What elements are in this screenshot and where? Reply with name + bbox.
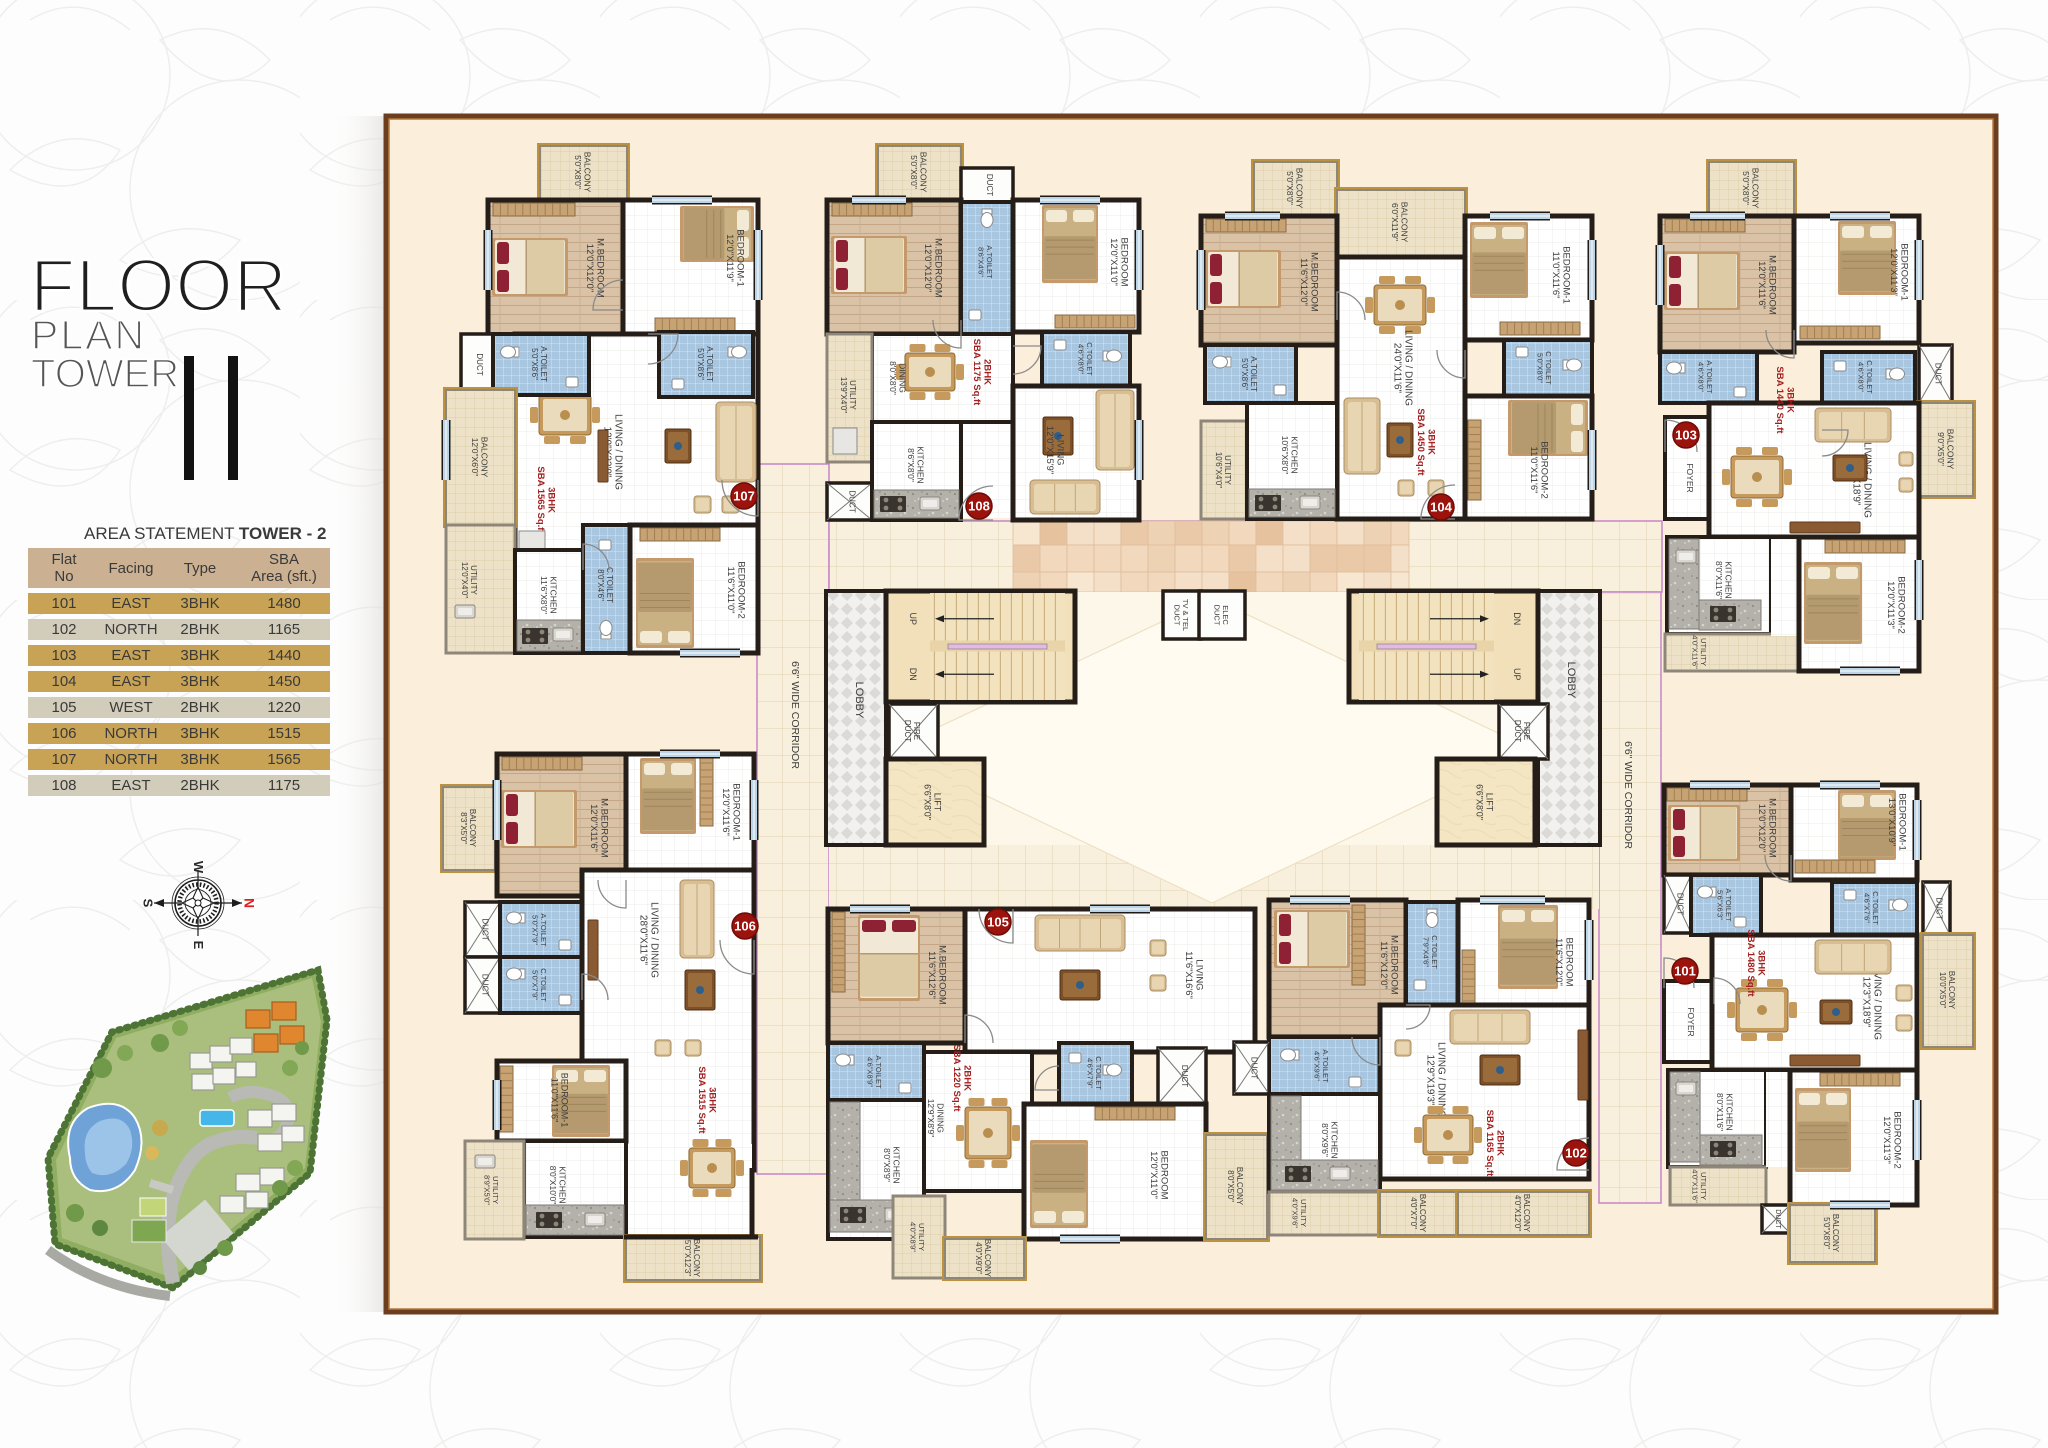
svg-text:C.TOILET4'6"X8'0": C.TOILET4'6"X8'0" — [1077, 342, 1095, 376]
svg-text:DUCT: DUCT — [848, 490, 857, 512]
svg-text:DUCT: DUCT — [1676, 893, 1685, 915]
svg-text:C.TOILET5'0"X7'9": C.TOILET5'0"X7'9" — [531, 968, 549, 1002]
svg-text:DINING8'0"X8'0": DINING8'0"X8'0" — [888, 361, 908, 395]
svg-text:C.TOILET8'0"X4'6": C.TOILET8'0"X4'6" — [596, 567, 614, 603]
svg-text:DUCT: DUCT — [1774, 1209, 1781, 1229]
svg-text:106: 106 — [734, 919, 756, 934]
svg-text:BEDROOM11'6"X12'0": BEDROOM11'6"X12'0" — [1553, 937, 1575, 986]
svg-text:DUCT: DUCT — [1935, 897, 1944, 919]
svg-text:KITCHEN8'0"X8'9": KITCHEN8'0"X8'9" — [882, 1146, 902, 1183]
svg-text:UTILITY10'6"X4'0": UTILITY10'6"X4'0" — [1214, 452, 1232, 488]
svg-text:KITCHEN8'0"X11'6": KITCHEN8'0"X11'6" — [1715, 1093, 1735, 1131]
svg-text:103: 103 — [1675, 428, 1697, 443]
svg-text:DUCT: DUCT — [1934, 363, 1943, 385]
svg-text:LOBBY: LOBBY — [1565, 662, 1577, 699]
svg-text:UTILITY4'0"X11'6": UTILITY4'0"X11'6" — [1691, 1169, 1709, 1203]
svg-text:BALCONY12'0"X6'0": BALCONY12'0"X6'0" — [470, 437, 490, 478]
svg-text:BEDROOM-112'0"X11'3": BEDROOM-112'0"X11'3" — [1888, 243, 1910, 301]
svg-text:6'6" WIDE CORRIDOR: 6'6" WIDE CORRIDOR — [1622, 741, 1634, 849]
svg-text:BALCONY5'0"X8'0": BALCONY5'0"X8'0" — [1741, 168, 1761, 209]
svg-text:104: 104 — [1430, 500, 1452, 515]
svg-text:BALCONY4'0"X12'0": BALCONY4'0"X12'0" — [1513, 1194, 1531, 1233]
svg-text:BEDROOM-111'0"X11'6": BEDROOM-111'0"X11'6" — [549, 1073, 569, 1128]
svg-text:BALCONY5'0"X8'0": BALCONY5'0"X8'0" — [1285, 168, 1305, 209]
svg-text:M.BEDROOM12'0"X12'0": M.BEDROOM12'0"X12'0" — [1756, 798, 1778, 858]
svg-text:DN: DN — [1512, 612, 1522, 625]
svg-text:BEDROOM-111'0"X11'6": BEDROOM-111'0"X11'6" — [1550, 246, 1572, 304]
svg-text:BALCONY5'0"X8'0": BALCONY5'0"X8'0" — [573, 152, 593, 193]
svg-text:UTILITY4'0"X11'6": UTILITY4'0"X11'6" — [1691, 635, 1709, 669]
svg-text:KITCHEN10'6"X8'0": KITCHEN10'6"X8'0" — [1280, 436, 1300, 475]
svg-text:ELECDUCT: ELECDUCT — [1213, 605, 1231, 626]
svg-text:KITCHEN8'0"X10'0": KITCHEN8'0"X10'0" — [548, 1166, 568, 1205]
svg-text:BALCONY8'3"X5'0": BALCONY8'3"X5'0" — [459, 809, 477, 848]
svg-text:KITCHEN8'0"X9'6": KITCHEN8'0"X9'6" — [1320, 1121, 1340, 1158]
svg-text:A.TOILET5'0"X8'6": A.TOILET5'0"X8'6" — [1240, 356, 1258, 392]
svg-text:A.TOILET4'6"X8'9": A.TOILET4'6"X8'9" — [866, 1055, 884, 1089]
svg-text:DINING12'9"X8'9": DINING12'9"X8'9" — [926, 1099, 946, 1138]
svg-text:105: 105 — [987, 915, 1009, 930]
svg-text:KITCHEN8'6"X8'0": KITCHEN8'6"X8'0" — [906, 446, 926, 483]
svg-text:A.TOILET5'0"X8'6": A.TOILET5'0"X8'6" — [696, 346, 714, 382]
svg-text:M.BEDROOM11'6"X12'0": M.BEDROOM11'6"X12'0" — [1378, 935, 1400, 995]
svg-text:BALCONY5'0"X8'0": BALCONY5'0"X8'0" — [909, 152, 929, 193]
svg-text:FOYER: FOYER — [1686, 1007, 1696, 1036]
svg-text:M.BEDROOM11'6"X12'0": M.BEDROOM11'6"X12'0" — [1298, 252, 1320, 312]
svg-text:DUCT: DUCT — [1250, 1057, 1259, 1079]
svg-text:A.TOILET5'0"X7'9": A.TOILET5'0"X7'9" — [531, 913, 549, 947]
svg-text:BEDROOM-113'0"X10'9": BEDROOM-113'0"X10'9" — [1886, 793, 1908, 851]
svg-text:UTILITY8'9"X5'0": UTILITY8'9"X5'0" — [483, 1175, 501, 1205]
svg-text:6'6" WIDE CORRIDOR: 6'6" WIDE CORRIDOR — [789, 661, 801, 769]
svg-text:102: 102 — [1565, 1146, 1587, 1161]
svg-text:BEDROOM-112'0"X11'6": BEDROOM-112'0"X11'6" — [720, 783, 742, 841]
svg-text:DUCT: DUCT — [481, 974, 490, 996]
svg-text:C.TOILET4'6"X8'0": C.TOILET4'6"X8'0" — [1857, 360, 1875, 394]
svg-text:C.TOILET4'6"X7'9": C.TOILET4'6"X7'9" — [1086, 1056, 1104, 1090]
svg-text:BEDROOM-212'0"X11'3": BEDROOM-212'0"X11'3" — [1881, 1111, 1903, 1169]
svg-text:BEDROOM-112'0"X11'9": BEDROOM-112'0"X11'9" — [724, 229, 746, 287]
svg-text:DUCT: DUCT — [985, 174, 994, 196]
svg-text:101: 101 — [1674, 964, 1696, 979]
svg-text:BALCONY5'0"X8'0": BALCONY5'0"X8'0" — [1822, 1214, 1840, 1253]
svg-text:DUCT: DUCT — [1180, 1065, 1189, 1087]
svg-text:KITCHEN11'6"X8'0": KITCHEN11'6"X8'0" — [539, 576, 559, 614]
svg-text:M.BEDROOM12'0"X11'6": M.BEDROOM12'0"X11'6" — [588, 798, 610, 858]
svg-text:C.TOILET7'9"X4'6": C.TOILET7'9"X4'6" — [1422, 935, 1440, 969]
svg-text:A.TOILET5'0"X8'6": A.TOILET5'0"X8'6" — [530, 346, 548, 382]
svg-text:A.TOILET5'6"X6'3": A.TOILET5'6"X6'3" — [1716, 888, 1734, 922]
svg-text:FOYER: FOYER — [1685, 463, 1695, 492]
svg-text:A.TOILET8'6"X4'6": A.TOILET8'6"X4'6" — [977, 245, 995, 279]
svg-text:C TOILET5'0"X8'0": C TOILET5'0"X8'0" — [1536, 351, 1554, 385]
svg-text:M.BEDROOM12'0"X11'6": M.BEDROOM12'0"X11'6" — [1756, 255, 1778, 315]
svg-text:BEDROOM12'0"X11'0": BEDROOM12'0"X11'0" — [1108, 237, 1130, 286]
svg-text:UP: UP — [908, 612, 918, 625]
svg-text:UTILITY13'9"X4'0": UTILITY13'9"X4'0" — [839, 377, 857, 413]
svg-text:108: 108 — [968, 499, 990, 514]
svg-text:UTILITY4'0"X8'9": UTILITY4'0"X8'9" — [909, 1222, 927, 1252]
svg-text:M.BEDROOM11'6"X12'6": M.BEDROOM11'6"X12'6" — [926, 945, 948, 1005]
svg-text:107: 107 — [733, 489, 755, 504]
svg-text:BALCONY9'0"X5'0": BALCONY9'0"X5'0" — [1936, 429, 1956, 470]
svg-text:A.TOILET4'6"X9'6": A.TOILET4'6"X9'6" — [1313, 1049, 1331, 1083]
svg-text:LOBBY: LOBBY — [853, 682, 865, 719]
svg-text:BEDROOM12'0"X11'0": BEDROOM12'0"X11'0" — [1148, 1150, 1170, 1199]
svg-text:DUCT: DUCT — [481, 918, 490, 940]
svg-text:BALCONY10'0"X5'0": BALCONY10'0"X5'0" — [1938, 971, 1956, 1010]
svg-text:BEDROOM-212'0"X11'3": BEDROOM-212'0"X11'3" — [1885, 576, 1907, 634]
svg-text:M.BEDROOM12'0"X12'0": M.BEDROOM12'0"X12'0" — [922, 238, 944, 298]
svg-text:BEDROOM-211'6"X11'0": BEDROOM-211'6"X11'0" — [725, 561, 747, 619]
svg-text:KITCHEN8'0"X11'6": KITCHEN8'0"X11'6" — [1714, 561, 1734, 599]
svg-text:DN: DN — [908, 668, 918, 681]
svg-text:UP: UP — [1512, 668, 1522, 681]
svg-text:A.TOILET4'6"X8'0": A.TOILET4'6"X8'0" — [1697, 360, 1715, 394]
svg-text:UTILITY12'0"X4'0": UTILITY12'0"X4'0" — [460, 562, 478, 598]
svg-text:BALCONY8'0"X5'0": BALCONY8'0"X5'0" — [1226, 1167, 1244, 1206]
svg-text:FIREDUCT: FIREDUCT — [903, 720, 921, 742]
svg-text:C.TOILET4'6"X7'6": C.TOILET4'6"X7'6" — [1863, 891, 1881, 925]
svg-text:DUCT: DUCT — [475, 353, 484, 375]
svg-text:BALCONY4'0"X9'0": BALCONY4'0"X9'0" — [974, 1239, 992, 1278]
svg-text:BALCONY5'0"X12'3": BALCONY5'0"X12'3" — [683, 1239, 701, 1278]
svg-text:BALCONY4'0"X7'0": BALCONY4'0"X7'0" — [1409, 1194, 1427, 1233]
svg-text:FIREDUCT: FIREDUCT — [1513, 720, 1531, 742]
svg-text:BALCONY6'0"X11'9": BALCONY6'0"X11'9" — [1390, 202, 1410, 243]
svg-text:UTILITY4'0"X9'6": UTILITY4'0"X9'6" — [1291, 1198, 1309, 1228]
svg-text:BEDROOM-211'0"X11'6": BEDROOM-211'0"X11'6" — [1528, 441, 1550, 499]
